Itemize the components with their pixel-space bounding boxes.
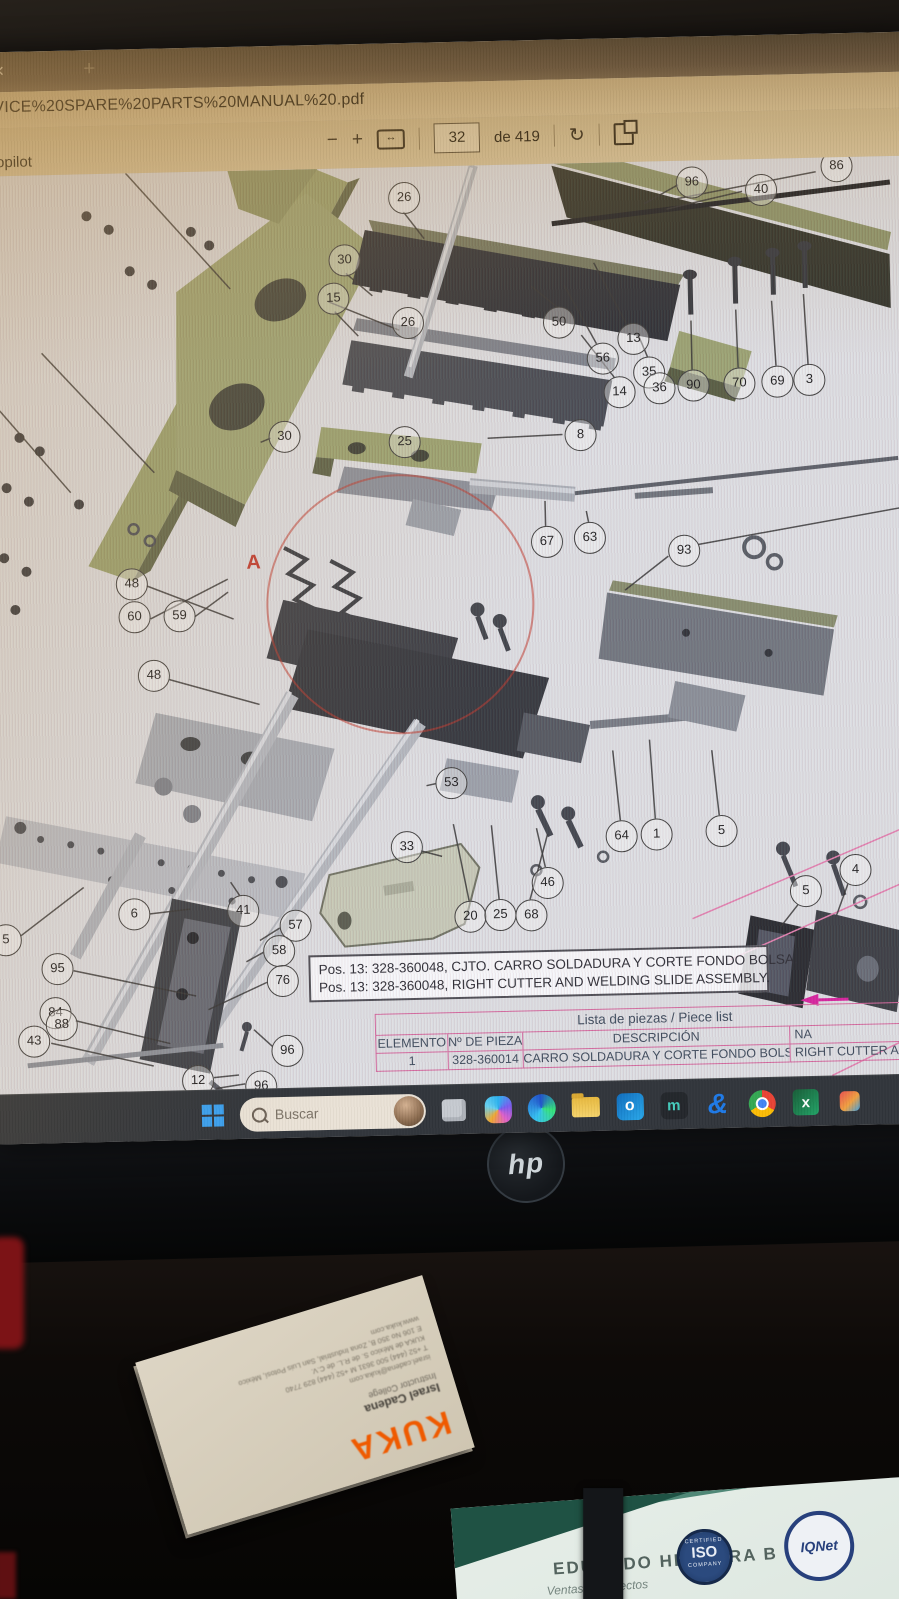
part-balloon: 4 — [839, 854, 872, 887]
part-balloon: 26 — [392, 307, 425, 340]
zoom-out-button[interactable]: − — [327, 130, 339, 152]
part-balloon: 20 — [454, 900, 487, 933]
page-view-icon[interactable] — [614, 123, 634, 145]
red-object — [0, 1237, 24, 1349]
part-balloon: 68 — [515, 899, 548, 932]
file-explorer-icon[interactable] — [569, 1091, 602, 1124]
cell-elemento: 1 — [377, 1052, 449, 1071]
part-balloon: 90 — [677, 369, 710, 402]
part-balloon: 25 — [484, 899, 517, 932]
part-balloon: 46 — [531, 867, 564, 900]
search-placeholder: Buscar — [275, 1105, 319, 1122]
part-balloon: 56 — [586, 342, 619, 375]
iqnet-badge-label: IQNet — [800, 1537, 838, 1556]
part-balloon: 13 — [617, 323, 650, 356]
hp-logo-text: hp — [507, 1147, 545, 1181]
part-balloon: 25 — [388, 426, 421, 459]
page-number-input[interactable]: 32 — [434, 122, 481, 153]
part-balloon: 86 — [820, 155, 853, 182]
part-balloon: 40 — [745, 174, 778, 207]
iso-certified-badge: CERTIFIED ISO COMPANY — [675, 1527, 735, 1587]
part-balloon: 5 — [790, 875, 823, 908]
part-balloon: 59 — [163, 600, 196, 633]
part-balloon: 6 — [118, 898, 151, 931]
part-balloon: 5 — [705, 815, 738, 848]
part-balloon: 76 — [267, 965, 300, 998]
notebook-strap — [583, 1488, 623, 1599]
red-object-corner — [0, 1552, 16, 1599]
part-balloon: 96 — [271, 1035, 304, 1068]
part-balloon: 58 — [263, 935, 296, 968]
widgets-icon[interactable] — [437, 1094, 470, 1127]
part-balloon: 95 — [41, 953, 74, 986]
rotate-page-icon[interactable]: ↻ — [569, 123, 585, 146]
search-icon — [252, 1107, 267, 1122]
part-balloon: 93 — [668, 534, 701, 567]
part-balloon: 70 — [723, 367, 756, 400]
part-balloon: 50 — [543, 306, 576, 339]
toolbar-divider — [599, 124, 600, 146]
part-balloon: 8 — [564, 419, 597, 452]
excel-icon[interactable]: x — [789, 1086, 822, 1119]
part-balloon: 53 — [435, 767, 468, 800]
part-balloon: 48 — [138, 659, 171, 692]
part-balloon: 33 — [391, 831, 424, 864]
m-app-icon[interactable]: m — [657, 1089, 690, 1122]
part-balloon: 88 — [45, 1009, 78, 1042]
part-balloon: 64 — [605, 820, 638, 853]
pinned-app-icon[interactable] — [833, 1085, 866, 1118]
part-balloon: 3 — [793, 364, 826, 397]
cell-name: RIGHT CUTTER AN — [791, 1041, 899, 1061]
tab-close-icon[interactable]: × — [0, 62, 4, 81]
edge-icon[interactable] — [525, 1092, 558, 1125]
chrome-icon[interactable] — [745, 1087, 778, 1120]
search-box[interactable]: Buscar — [240, 1094, 427, 1132]
outlook-icon[interactable]: o — [613, 1090, 646, 1123]
part-balloon: 41 — [227, 895, 260, 928]
new-tab-icon[interactable]: + — [83, 58, 96, 79]
toolbar-divider — [554, 125, 555, 147]
part-balloon: 63 — [574, 522, 607, 555]
windows-start-icon[interactable] — [202, 1104, 224, 1126]
part-balloon: 14 — [603, 376, 636, 409]
iqnet-badge: IQNet — [782, 1509, 857, 1584]
part-balloon: 36 — [643, 372, 676, 405]
zoom-in-button[interactable]: + — [352, 129, 364, 151]
part-balloon: 96 — [676, 166, 709, 199]
part-balloon: 26 — [388, 182, 421, 215]
col-name: NA — [790, 1023, 899, 1043]
url-text: RVICE%20SPARE%20PARTS%20MANUAL%20.pdf — [0, 91, 365, 118]
avatar[interactable] — [394, 1096, 425, 1127]
part-balloon: 60 — [118, 601, 151, 634]
cell-num-pieza: 328-360014 — [448, 1051, 523, 1070]
copilot-label[interactable]: Copilot — [0, 153, 32, 171]
part-balloon: 30 — [268, 420, 301, 453]
fit-width-icon[interactable]: ↔ — [377, 129, 405, 150]
part-balloon: 15 — [317, 282, 350, 315]
part-balloon: 1 — [640, 818, 673, 851]
copilot-icon[interactable] — [481, 1093, 514, 1126]
toolbar-divider — [419, 128, 420, 150]
part-balloon: 69 — [761, 365, 794, 398]
part-balloon: 48 — [115, 568, 148, 601]
part-balloon: 30 — [328, 244, 361, 277]
blue-glyph-app-icon[interactable]: & — [701, 1088, 734, 1121]
col-elemento: ELEMENTO — [376, 1034, 448, 1053]
monitor-screen: × + RVICE%20SPARE%20PARTS%20MANUAL%20.pd… — [0, 31, 899, 1144]
parts-table: Lista de piezas / Piece list ELEMENTO Nº… — [375, 1001, 899, 1072]
pdf-toolbar: − + ↔ 32 de 419 ↻ — [326, 114, 634, 161]
part-balloon: 67 — [531, 526, 564, 559]
page-total-label: de 419 — [494, 127, 540, 145]
col-num-pieza: Nº DE PIEZA — [448, 1033, 523, 1052]
part-balloon: 43 — [18, 1025, 51, 1058]
pdf-page: A 26301526509640861356143536907069330258… — [0, 155, 899, 1094]
photo-of-monitor: hp × + RVICE%20SPARE%20PARTS%20MANUAL%20… — [0, 0, 899, 1599]
part-balloon: 5 — [0, 924, 22, 957]
